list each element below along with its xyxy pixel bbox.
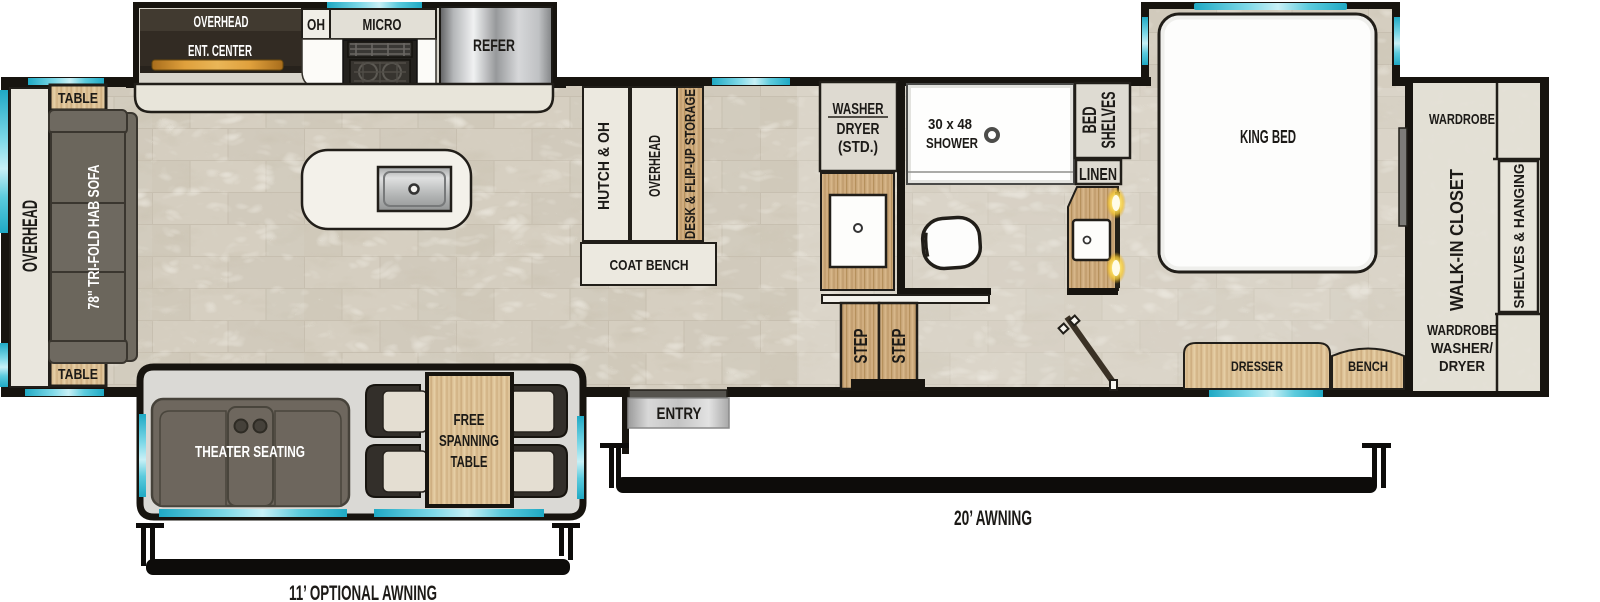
svg-text:ENTRY: ENTRY: [657, 404, 703, 423]
svg-text:TABLE: TABLE: [451, 454, 488, 471]
svg-text:DRYER: DRYER: [837, 121, 880, 138]
svg-text:DESK & FLIP-UP STORAGE: DESK & FLIP-UP STORAGE: [683, 89, 699, 239]
svg-text:FREE: FREE: [454, 412, 485, 429]
svg-text:OVERHEAD: OVERHEAD: [647, 135, 664, 197]
svg-text:STEP: STEP: [889, 329, 909, 364]
svg-text:LINEN: LINEN: [1079, 164, 1117, 184]
svg-text:HUTCH & OH: HUTCH & OH: [596, 122, 613, 210]
svg-text:DRESSER: DRESSER: [1231, 358, 1283, 374]
svg-text:WALK-IN CLOSET: WALK-IN CLOSET: [1447, 169, 1467, 311]
svg-text:COAT BENCH: COAT BENCH: [610, 257, 689, 274]
svg-text:SHOWER: SHOWER: [926, 135, 978, 152]
svg-text:(STD.): (STD.): [838, 139, 878, 156]
svg-text:BED: BED: [1080, 107, 1101, 134]
svg-text:SHELVES & HANGING: SHELVES & HANGING: [1511, 164, 1528, 309]
svg-text:30 x 48: 30 x 48: [928, 116, 972, 133]
svg-text:WASHER: WASHER: [833, 101, 884, 118]
svg-text:WARDROBE: WARDROBE: [1429, 111, 1495, 128]
svg-text:WASHER/: WASHER/: [1431, 341, 1493, 357]
svg-text:20’ AWNING: 20’ AWNING: [954, 507, 1032, 530]
svg-text:REFER: REFER: [473, 37, 515, 55]
svg-text:KING BED: KING BED: [1240, 126, 1296, 147]
svg-text:THEATER SEATING: THEATER SEATING: [195, 444, 305, 461]
svg-text:SHELVES: SHELVES: [1099, 92, 1120, 149]
svg-text:DRYER: DRYER: [1439, 359, 1485, 375]
svg-text:SPANNING: SPANNING: [439, 433, 499, 450]
svg-text:TABLE: TABLE: [58, 91, 98, 107]
svg-text:TABLE: TABLE: [58, 367, 98, 383]
svg-text:BENCH: BENCH: [1348, 358, 1388, 374]
svg-text:MICRO: MICRO: [363, 17, 402, 34]
svg-text:OVERHEAD: OVERHEAD: [194, 14, 249, 31]
svg-text:STEP: STEP: [851, 329, 871, 364]
svg-text:ENT. CENTER: ENT. CENTER: [188, 43, 252, 60]
svg-text:OH: OH: [307, 17, 325, 34]
svg-text:78" TRI-FOLD HAB SOFA: 78" TRI-FOLD HAB SOFA: [86, 164, 103, 309]
svg-text:WARDROBE: WARDROBE: [1427, 323, 1497, 339]
svg-text:OVERHEAD: OVERHEAD: [19, 200, 42, 272]
svg-text:11’ OPTIONAL AWNING: 11’ OPTIONAL AWNING: [289, 582, 437, 602]
